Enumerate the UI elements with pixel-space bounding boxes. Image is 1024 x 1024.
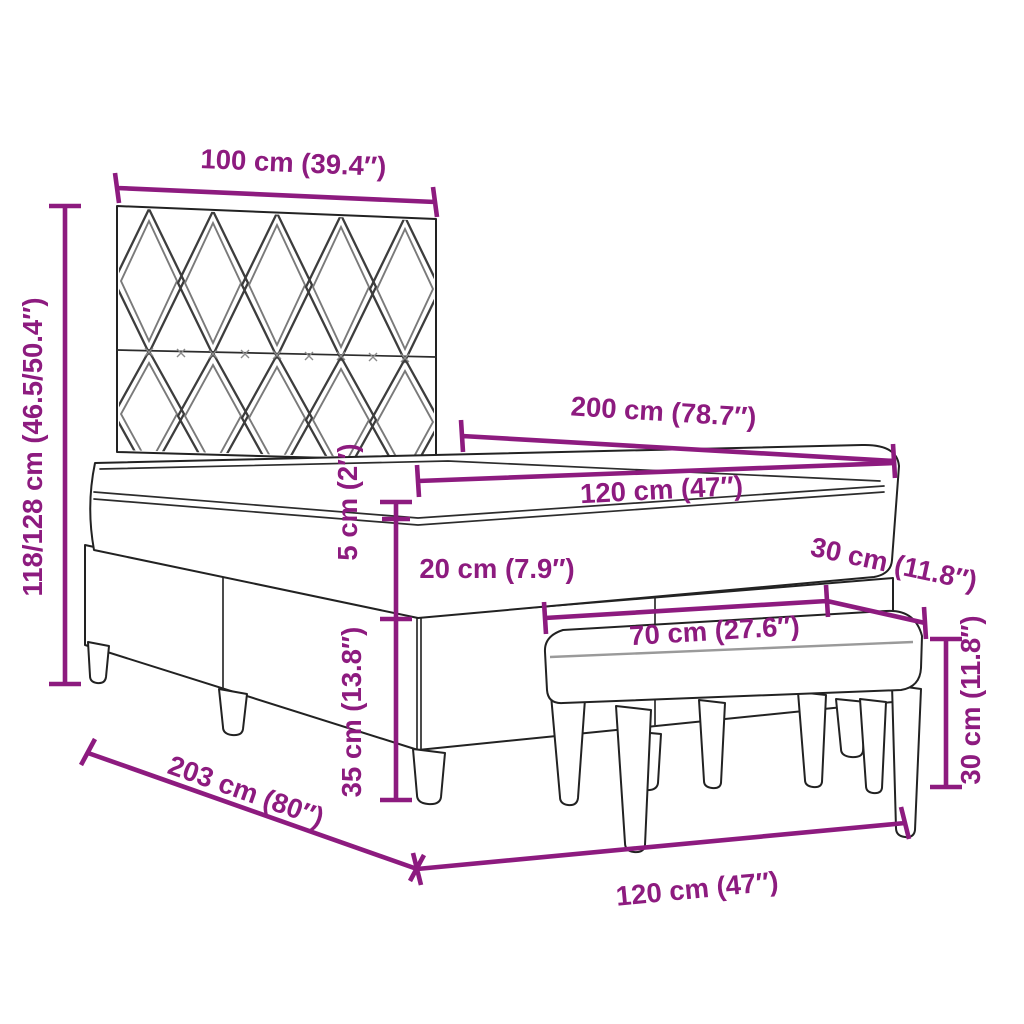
dim-label: 120 cm (47″) xyxy=(614,865,779,911)
dim-total-length: 203 cm (80″) xyxy=(81,739,424,881)
dim-label: 200 cm (78.7″) xyxy=(570,390,757,432)
dim-bed-height-range: 118/128 cm (46.5/50.4″) xyxy=(17,206,81,684)
bed-leg xyxy=(88,642,109,683)
dim-label-mattress: 20 cm (7.9″) xyxy=(419,553,574,584)
bench-leg xyxy=(892,685,921,837)
bench-leg xyxy=(860,699,886,793)
dim-headboard-width: 100 cm (39.4″) xyxy=(115,143,437,217)
bed-headboard xyxy=(114,206,440,485)
bench-leg xyxy=(551,695,585,805)
bench-leg xyxy=(798,692,826,787)
bed-leg xyxy=(219,689,247,735)
dim-label-base: 35 cm (13.8″) xyxy=(336,627,367,798)
dim-label: 203 cm (80″) xyxy=(164,749,328,833)
bench-leg xyxy=(699,700,725,788)
dim-label: 118/128 cm (46.5/50.4″) xyxy=(17,297,48,596)
dim-label-topper: 5 cm (2″) xyxy=(332,443,363,560)
dim-label: 100 cm (39.4″) xyxy=(200,143,387,182)
product-diagram: 100 cm (39.4″) 118/128 cm (46.5/50.4″) 2… xyxy=(0,0,1024,1024)
dim-label: 30 cm (11.8″) xyxy=(955,615,986,784)
dim-bed-width-floor: 120 cm (47″) xyxy=(413,807,909,912)
bed-leg xyxy=(413,749,445,804)
bench-leg xyxy=(616,706,651,852)
dim-bench-height: 30 cm (11.8″) xyxy=(930,615,986,787)
